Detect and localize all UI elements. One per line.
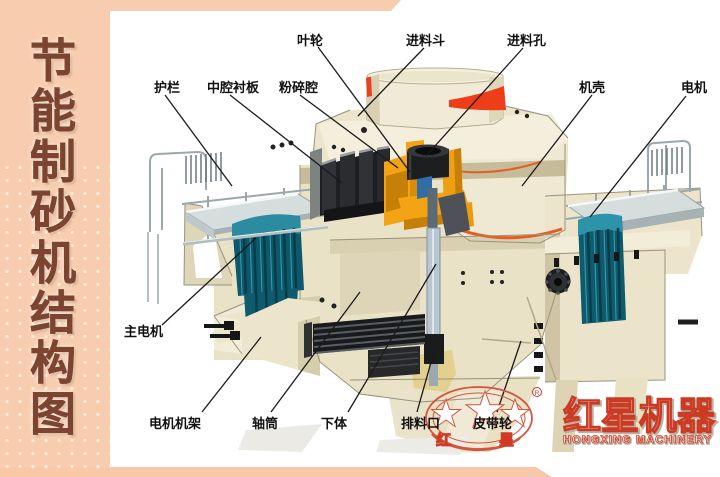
svg-text:红星机器: 红星机器 [563,396,716,438]
svg-text:HONGXING MACHINERY: HONGXING MACHINERY [563,434,712,446]
svg-text:红: 红 [436,431,451,449]
svg-text:星: 星 [499,432,514,449]
svg-text:R: R [535,390,540,397]
